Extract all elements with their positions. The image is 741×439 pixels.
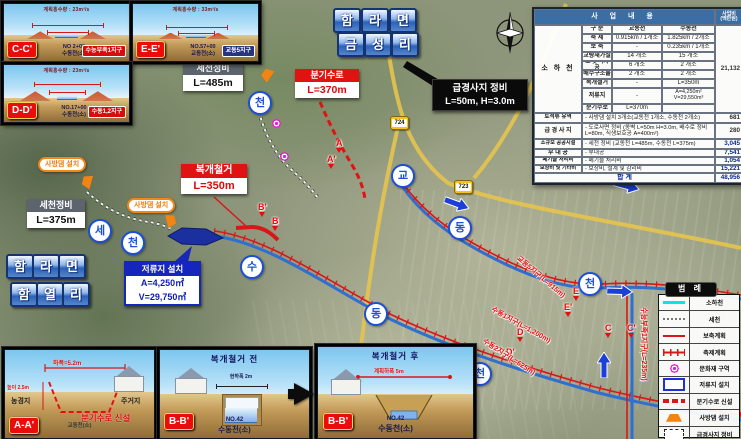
district-badge: 교동5지구 [222,45,255,57]
dimension-line [49,90,86,95]
flow-arrow [442,193,471,215]
house-icon [172,368,210,394]
row-desc: - 세천 정비 (교동천 L=485m, 수동천 L=375m) [582,139,715,149]
stream-circle: 천 [121,231,145,255]
cell: 0.915km / 1개소 [612,34,662,43]
section-scene: 계획홍수량 : 23m³/s NO.17+00수동천(소) D-D' 수동1,2… [4,65,129,122]
stream-circle: 천 [578,272,602,296]
left-title-char: 함 [6,254,34,279]
left-title-char: 라 [32,254,60,279]
callout-title: 분기수로 [295,69,359,82]
table-title: 사 업 내 용 [534,9,715,25]
cell: 1.825km / 2개소 [662,34,715,43]
legend-label: 저류지 설치 [690,380,739,389]
cell [662,104,715,113]
stream-circle: 수 [240,255,264,279]
route-number: 723 [456,183,471,191]
row-desc: - 폐기물 처리비 [582,157,715,165]
legend-item: 소하천 [659,295,739,311]
cultural-heritage-marker [279,151,290,162]
section-badge: B-B' [164,413,194,430]
before-title: 복개철거 전 [160,353,309,365]
stream-circle: 세 [88,219,112,243]
inset-section-cc: 계획홍수량 : 23m³/s NO 2+00수동천(소) C-C' 수능부족1지… [1,1,132,64]
section-badge: D-D' [7,102,37,119]
col-sudong: 수동천 [662,25,715,34]
row-label: 분기수로 [582,104,612,113]
row-label: 보 축 [582,43,612,52]
small-river-line-icon [663,301,685,304]
width-dimension-label: 계획하폭 5m [374,367,404,375]
branch-waterway-icon [663,399,685,403]
section-scene: 하폭=5.2m 높이 2.5m 농경지 주거지 교동천(소) 분기수로 신설 A… [5,350,154,438]
category-incidental: 부 대 공 [534,149,582,157]
cell: - [612,43,662,52]
legend-label: 축제계획 [690,348,739,357]
section-scene: 복개철거 후 계획하폭 5m NO.42수동천(소) B-B' [318,347,473,438]
cell: - [612,88,662,104]
stream-circle: 동 [448,216,472,240]
callout-title: 복개철거 [181,164,247,178]
legend-label: 소하천 [690,298,739,307]
heritage-zone-icon [669,363,680,374]
legend-label: 문화재 구역 [690,364,739,373]
row-desc: - 부대공 [582,149,715,157]
legend-label: 분기수로 신설 [690,397,739,406]
callout-secheon-485: 세천정비 L=485m [183,62,243,91]
dimension-line [216,384,268,389]
callout-jeoryuji: 저류지 설치 A=4,250㎡ V=29,750㎥ [124,261,201,306]
section-marker: A' [327,154,336,169]
legend-item: 급경사지 정비 [659,427,739,439]
callout-bungisuro: 분기수로 L=370m [295,69,359,98]
row-desc: - 도로사면 정비 (옹벽 L=50m H=3.0m, 배수로 정비 L=80m… [582,123,715,139]
callout-value: L=485m [183,75,243,91]
embankment [19,91,52,101]
row-label: 보 및 낙차공 [582,61,612,70]
col-gyodong: 교동천 [612,25,662,34]
category-waste: 폐기물 처리비 [534,157,582,165]
section-badge: A-A' [9,417,39,434]
legend-item: 문화재 구역 [659,361,739,377]
section-marker: B [272,216,279,231]
water [57,96,77,100]
legend-label: 사방댐 설치 [690,413,739,422]
legend-body: 소하천 세천 보축계획 축제계획 문화재 구역 저류지 설치 분기수로 신설 사… [658,294,740,438]
cultural-heritage-marker [271,118,282,129]
left-title-char: 열 [36,282,64,307]
section-marker: B' [258,202,267,217]
top-title-char: 리 [391,32,419,57]
legend-label: 급경사지 정비 [690,430,739,439]
legend-item: 보축계획 [659,328,739,344]
row-label: 복개철거 [582,79,612,88]
callout-area: A=4,250㎡ [126,276,199,290]
callout-line1: 급경사지 정비 [438,82,522,95]
bokgae-callout-leader [214,197,247,227]
cell: L=370m [612,104,662,113]
callout-bokgae: 복개철거 L=350m [181,164,247,194]
station-text: NO.57+00교동천(소) [178,44,228,58]
design-flood-text: 계획홍수량 : 23m³/s [4,6,129,13]
category-steep-slope: 급 경 사 지 [534,123,582,139]
station-text: NO.42수동천(소) [205,417,265,435]
section-badge: B-B' [323,413,353,430]
callout-steep-slope: 급경사지 정비 L=50m, H=3.0m [432,79,528,111]
height-dimension-label: 높이 2.5m [7,384,29,391]
row-label: 교량재가설 [582,52,612,61]
category-debris-flow: 토석류 유역 [534,113,582,123]
section-badge: C-C' [7,41,37,58]
compass-icon [497,12,523,54]
design-flood-text: 계획홍수량 : 33m³/s [133,6,258,13]
row-cost: 3,045 [715,139,741,149]
disaster-improvement-plan-map: 함 라 면 금 성 리 함 라 면 함 열 리 세천정비 L=485m 분기수로… [0,0,741,439]
dimension-line [32,23,104,28]
cost-column-header: 사업비(백만원) [715,9,741,25]
dimension-line [34,82,101,87]
legend-item: 분기수로 신설 [659,394,739,410]
legend-item: 저류지 설치 [659,377,739,393]
callout-secheon-375: 세천정비 L=375m [27,199,85,228]
top-title-char: 면 [389,8,417,33]
legend-title: 범 례 [665,282,717,297]
left-title-char: 함 [10,282,38,307]
section-scene: 계획홍수량 : 23m³/s NO 2+00수동천(소) C-C' 수능부족1지… [4,4,129,61]
row-cost: 1,054 [715,157,741,165]
legend-item: 사방댐 설치 [659,410,739,426]
residential-label: 주거지 [121,396,140,406]
steep-slope-icon [664,429,684,439]
callout-title: 세천정비 [27,199,85,212]
row-desc: - 보상비, 설계 및 감리비 [582,165,715,173]
left-title-char: 리 [62,282,90,307]
sabang-dam-label: 사방댐 설치 [127,198,175,213]
sabang-dam-label: 사방댐 설치 [38,157,86,172]
dimension-line [178,31,215,36]
cell: - [612,79,662,88]
cell: 0.235km / 1개소 [662,43,715,52]
row-label: 배수구조물 [582,70,612,79]
category-cost: 21,132 [715,25,741,113]
before-after-arrow-icon [294,383,314,405]
legend-item: 세천 [659,311,739,327]
cell: L=350m [662,79,715,88]
route-badge-724: 724 [390,116,409,130]
route-number: 724 [392,119,407,127]
width-dimension-label: 하폭=5.2m [53,358,81,367]
callout-value: L=370m [295,82,359,98]
row-cost: 15,221 [715,165,741,173]
inset-section-ee: 계획홍수량 : 33m³/s NO.57+00교동천(소) E-E' 교동5지구 [130,1,261,64]
cell: 2 개소 [662,70,715,79]
top-title-char: 금 [337,32,365,57]
station-text: NO.42수동천(소) [365,416,427,434]
cell: 14 개소 [612,52,662,61]
top-title-char: 함 [333,8,361,33]
inset-section-dd: 계획홍수량 : 23m³/s NO.17+00수동천(소) D-D' 수동1,2… [1,62,132,125]
reach-label: 수능부족1지구(L=235m) [639,296,649,392]
retention-pond-icon [663,378,685,391]
left-title-char: 면 [58,254,86,279]
new-branch-waterway-note: 분기수로 신설 [81,412,130,424]
secheon-line-icon [663,318,685,320]
cell: 2 개소 [662,61,715,70]
row-label: 축 제 [582,34,612,43]
legend: 범 례 소하천 세천 보축계획 축제계획 문화재 구역 저류지 설치 분기수로 … [658,282,740,438]
section-marker: C [605,323,612,338]
section-marker: A [336,138,343,153]
row-cost: 7,541 [715,149,741,157]
retention-pond-leader [174,246,192,262]
project-summary-table: 사 업 내 용 사업비(백만원) 소 하 천 21,132 구 분 교동천 수동… [532,7,741,185]
top-title-char: 성 [364,32,392,57]
district-badge: 수능부족1지구 [82,45,126,57]
inset-section-aa: 하폭=5.2m 높이 2.5m 농경지 주거지 교동천(소) 분기수로 신설 A… [2,347,157,439]
cell: 6 개소 [612,61,662,70]
route-badge-723: 723 [454,180,473,194]
stream-text: 교동천(소) [56,423,104,430]
callout-volume: V=29,750㎥ [126,290,199,304]
sabang-dam-icon [666,414,682,422]
house-icon [111,366,147,392]
design-flood-text: 계획홍수량 : 23m³/s [4,67,129,74]
width-dimension-label: 현하폭 2m [218,374,264,380]
row-desc: - 사방댐 설치 3개소(교동천 1개소, 수동천 2개소) [582,113,715,123]
category-small-river: 소 하 천 [534,25,582,113]
farmland-label: 농경지 [11,396,30,406]
cell: A=4,250m² V=29,550m³ [662,88,715,104]
legend-item: 축제계획 [659,344,739,360]
section-scene: 계획홍수량 : 33m³/s NO.57+00교동천(소) E-E' 교동5지구 [133,4,258,61]
section-badge: E-E' [136,41,165,58]
row-cost: 280 [715,123,741,139]
callout-value: L=350m [181,178,247,194]
bungisuro-line [320,102,365,200]
section-scene: 복개철거 전 현하폭 2m NO.42수동천(소) B-B' [160,350,309,438]
suneung-bujok-lines [619,287,632,439]
top-title-char: 라 [361,8,389,33]
row-label: 저류지 [582,88,612,104]
total-cost: 48,956 [715,173,741,183]
levee-reinforce-line-icon [663,335,685,337]
row-cost: 681 [715,113,741,123]
house-icon [328,369,364,395]
district-badge: 수동1,2지구 [88,106,126,118]
total-label: 합 계 [534,173,715,183]
legend-label: 세천 [690,315,739,324]
inset-section-bb-after: 복개철거 후 계획하폭 5m NO.42수동천(소) B-B' [315,344,476,439]
callout-title: 저류지 설치 [126,263,199,276]
dimension-line [166,25,228,30]
embankment [82,91,115,101]
dimension-line [47,30,89,35]
levee-plan-line-icon [663,349,685,356]
category-small-facility: 소규모 공공시설 [534,139,582,149]
cell: 15 개소 [662,52,715,61]
callout-value: L=375m [27,212,85,228]
section-marker: C' [627,323,636,338]
cell: 2 개소 [612,70,662,79]
stream-circle: 천 [248,91,272,115]
row-label: 구 분 [582,25,612,34]
flow-arrow [597,352,611,378]
stream-circle: 교 [391,164,415,188]
callout-line2: L=50m, H=3.0m [438,95,522,108]
category-compensation: 보상비 및 기타비 [534,165,582,173]
stream-circle: 동 [364,302,388,326]
legend-label: 보축계획 [690,331,739,340]
